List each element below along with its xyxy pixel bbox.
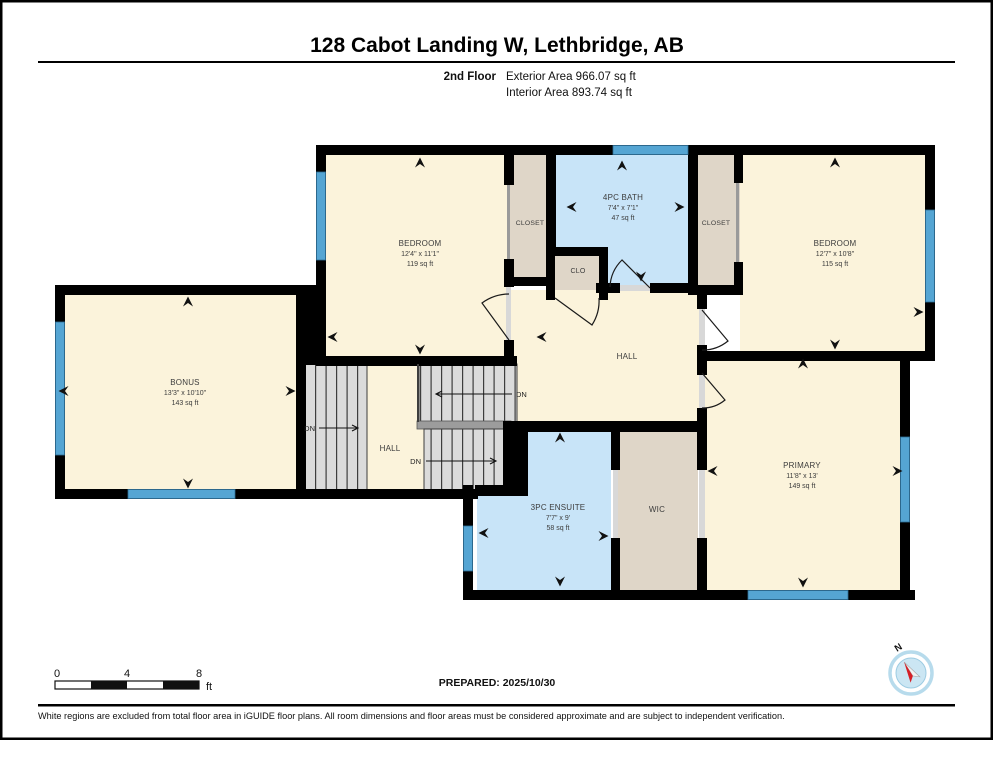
- dn-label: DN: [304, 424, 315, 433]
- scale-unit: ft: [206, 681, 212, 693]
- window: [926, 210, 935, 302]
- interior-area: Interior Area 893.74 sq ft: [506, 87, 633, 99]
- room-label: HALL: [380, 444, 401, 453]
- floor-plan-page: 128 Cabot Landing W, Lethbridge, AB 2nd …: [0, 0, 993, 768]
- room-hall: [504, 290, 704, 431]
- prepared-date: PREPARED: 2025/10/30: [439, 677, 556, 689]
- room-dims: 13'3" x 10'10": [164, 390, 207, 397]
- room-label: BEDROOM: [814, 239, 857, 248]
- disclaimer: White regions are excluded from total fl…: [38, 711, 785, 721]
- room-label: CLOSET: [702, 220, 730, 227]
- scale-tick-0: 0: [54, 668, 60, 680]
- window: [317, 172, 326, 260]
- dn-label: DN: [516, 390, 527, 399]
- floor-plan-canvas: 128 Cabot Landing W, Lethbridge, AB 2nd …: [0, 0, 993, 768]
- scale-bar-segment: [91, 681, 127, 689]
- room-label: HALL: [617, 352, 638, 361]
- room-label: WIC: [649, 505, 665, 514]
- room-dims: 7'7" x 9': [546, 515, 570, 522]
- room-area: 119 sq ft: [407, 261, 433, 268]
- floor-label: 2nd Floor: [444, 71, 497, 83]
- scale-tick-4: 4: [124, 668, 130, 680]
- header-rule: [38, 61, 955, 63]
- room-area: 47 sq ft: [612, 215, 635, 222]
- room-label: PRIMARY: [783, 461, 821, 470]
- window: [748, 591, 848, 600]
- room-area: 58 sq ft: [547, 525, 570, 532]
- stairs-lower: [424, 429, 508, 491]
- window: [613, 146, 688, 155]
- room-area: 115 sq ft: [822, 261, 848, 268]
- scale-tick-8: 8: [196, 668, 202, 680]
- room-label: CLOSET: [516, 220, 544, 227]
- page-title: 128 Cabot Landing W, Lethbridge, AB: [310, 34, 684, 57]
- room-dims: 11'8" x 13': [786, 473, 818, 480]
- window: [128, 490, 235, 499]
- scale-bar: 0 4 8 ft: [54, 668, 212, 693]
- scale-bar-segment: [163, 681, 199, 689]
- footer-rule: [38, 704, 955, 707]
- room-dims: 7'4" x 7'1": [608, 205, 639, 212]
- dn-label: DN: [410, 457, 421, 466]
- room-area: 149 sq ft: [789, 483, 816, 490]
- room-label: 4PC BATH: [603, 193, 643, 202]
- sliding-door: [736, 183, 739, 262]
- window: [464, 526, 473, 571]
- room-dims: 12'4" x 11'1": [401, 251, 439, 258]
- room-label: 3PC ENSUITE: [531, 503, 586, 512]
- room-area: 143 sq ft: [172, 400, 199, 407]
- sliding-door: [507, 185, 510, 259]
- room-label: CLO: [571, 268, 586, 275]
- room-label: BEDROOM: [399, 239, 442, 248]
- exterior-area: Exterior Area 966.07 sq ft: [506, 71, 637, 83]
- compass: N: [890, 642, 932, 694]
- room-label: BONUS: [170, 378, 199, 387]
- stairs-landing: [417, 421, 511, 429]
- window: [56, 322, 65, 455]
- stairs-upper: [419, 364, 517, 422]
- room-dims: 12'7" x 10'8": [816, 251, 855, 258]
- door-swing: [702, 310, 728, 350]
- window: [901, 437, 910, 522]
- header: 128 Cabot Landing W, Lethbridge, AB 2nd …: [38, 34, 955, 99]
